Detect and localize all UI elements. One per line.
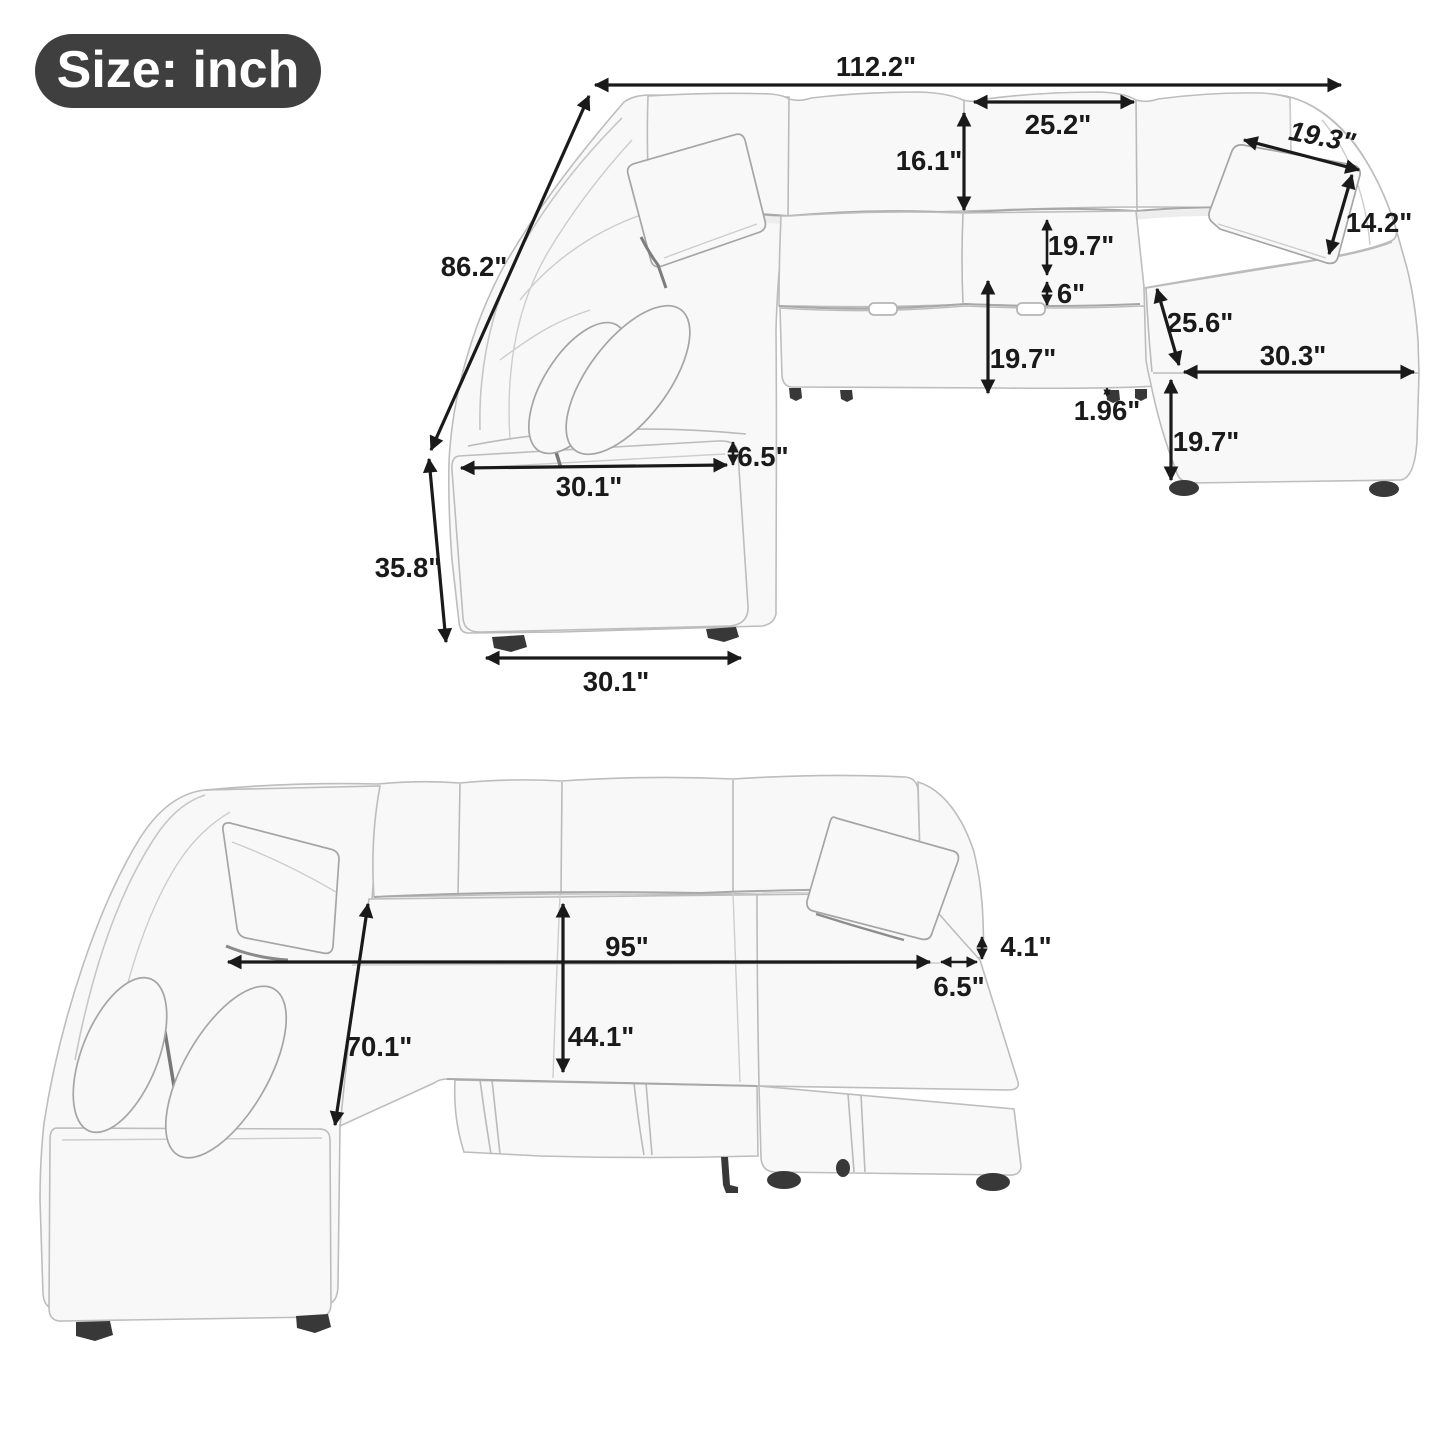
svg-text:16.1": 16.1" xyxy=(896,145,963,176)
svg-text:44.1": 44.1" xyxy=(568,1021,635,1052)
svg-text:19.7": 19.7" xyxy=(990,343,1057,374)
svg-text:Size: inch: Size: inch xyxy=(57,41,300,99)
svg-text:19.7": 19.7" xyxy=(1048,230,1115,261)
svg-text:86.2": 86.2" xyxy=(441,251,508,282)
svg-text:30.1": 30.1" xyxy=(556,471,623,502)
svg-text:35.8": 35.8" xyxy=(375,552,442,583)
svg-text:6.5": 6.5" xyxy=(933,971,984,1002)
svg-text:25.2": 25.2" xyxy=(1025,109,1092,140)
svg-text:70.1": 70.1" xyxy=(346,1031,413,1062)
svg-text:6.5": 6.5" xyxy=(737,441,788,472)
svg-text:4.1": 4.1" xyxy=(1000,931,1051,962)
svg-text:1.96": 1.96" xyxy=(1074,395,1141,426)
svg-text:30.3": 30.3" xyxy=(1260,340,1327,371)
svg-text:112.2": 112.2" xyxy=(836,51,916,82)
svg-text:30.1": 30.1" xyxy=(583,666,650,697)
svg-text:14.2": 14.2" xyxy=(1346,207,1413,238)
svg-text:95": 95" xyxy=(605,931,649,962)
svg-text:25.6": 25.6" xyxy=(1167,307,1234,338)
svg-text:19.7": 19.7" xyxy=(1173,426,1240,457)
svg-text:6": 6" xyxy=(1057,278,1085,309)
